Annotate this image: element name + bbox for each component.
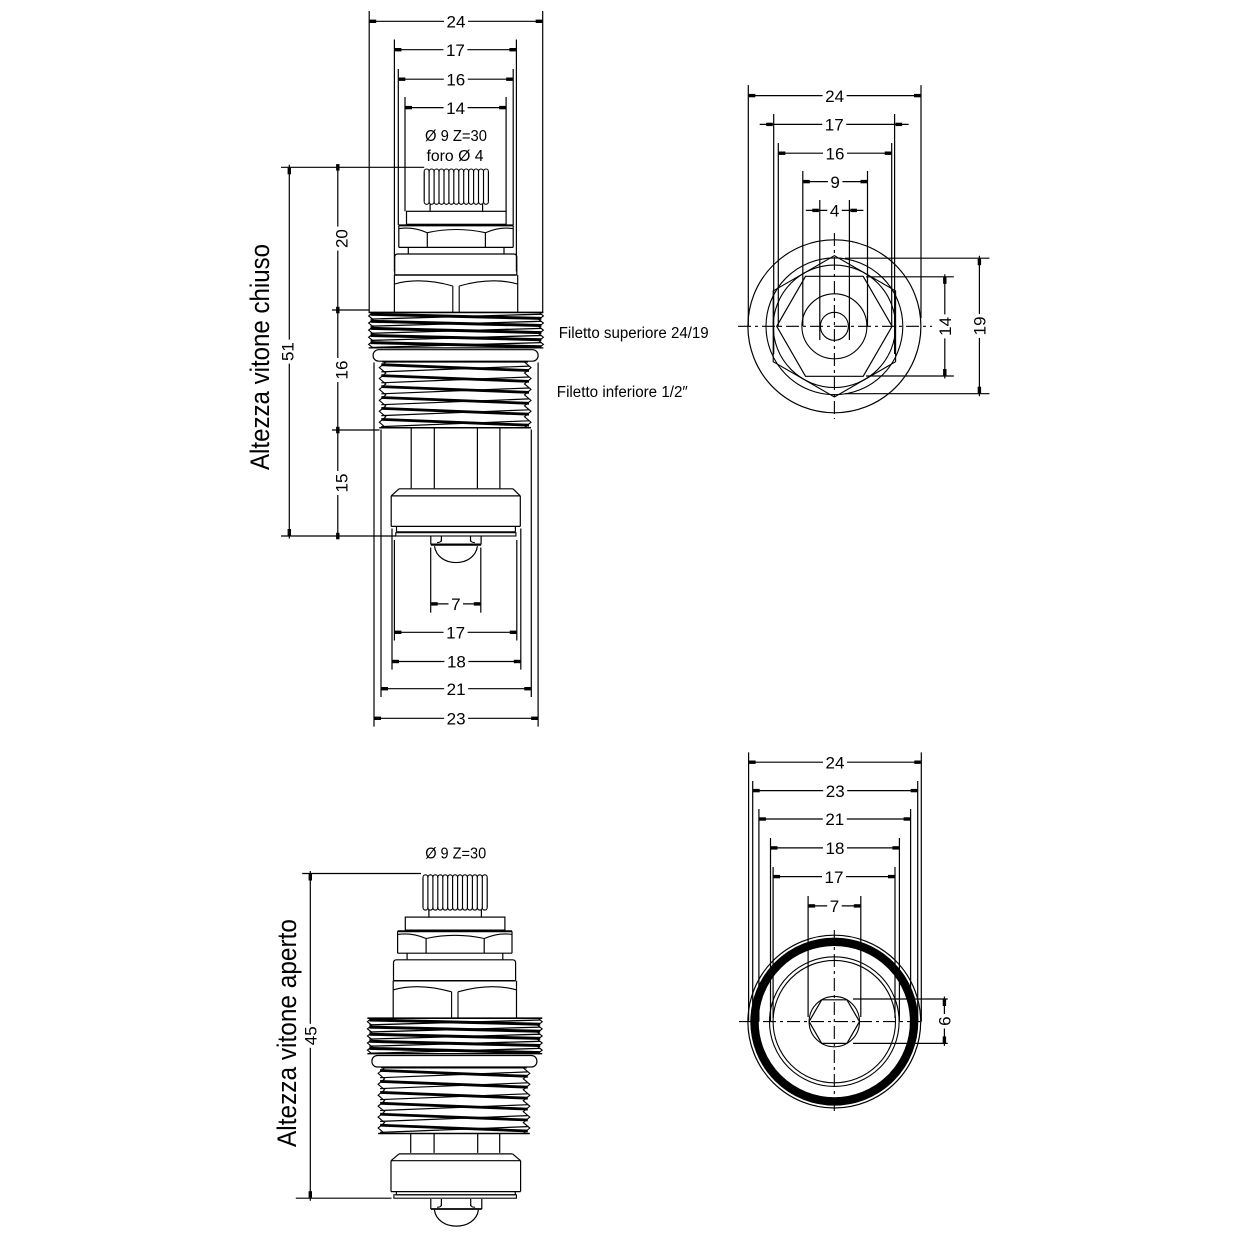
svg-text:Altezza vitone chiuso: Altezza vitone chiuso (245, 244, 275, 470)
svg-text:24: 24 (825, 87, 844, 106)
svg-text:14: 14 (446, 99, 465, 118)
svg-text:16: 16 (826, 144, 845, 163)
svg-text:18: 18 (447, 653, 466, 672)
svg-text:9: 9 (830, 173, 839, 192)
svg-text:24: 24 (826, 753, 845, 772)
svg-text:21: 21 (825, 810, 844, 829)
svg-text:24: 24 (447, 13, 466, 32)
svg-text:16: 16 (333, 361, 352, 380)
svg-text:19: 19 (971, 316, 990, 335)
svg-text:45: 45 (302, 1026, 321, 1045)
svg-text:18: 18 (826, 839, 845, 858)
svg-text:Ø 9 Z=30: Ø 9 Z=30 (425, 846, 486, 863)
svg-text:Filetto superiore 24/19: Filetto superiore 24/19 (559, 325, 709, 342)
svg-text:Altezza vitone aperto: Altezza vitone aperto (272, 919, 302, 1147)
svg-text:51: 51 (279, 342, 298, 361)
svg-text:Filetto inferiore 1/2″: Filetto inferiore 1/2″ (557, 384, 688, 401)
svg-text:21: 21 (447, 680, 466, 699)
svg-text:foro Ø 4: foro Ø 4 (427, 148, 484, 165)
svg-text:17: 17 (825, 868, 844, 887)
svg-text:20: 20 (333, 229, 352, 248)
svg-text:17: 17 (446, 41, 465, 60)
svg-text:14: 14 (936, 317, 955, 336)
svg-text:23: 23 (826, 782, 845, 801)
svg-text:23: 23 (447, 710, 466, 729)
svg-text:16: 16 (446, 70, 465, 89)
svg-text:7: 7 (451, 595, 460, 614)
svg-text:7: 7 (830, 897, 839, 916)
svg-text:4: 4 (830, 202, 839, 221)
svg-text:6: 6 (936, 1016, 955, 1025)
svg-text:15: 15 (333, 474, 352, 493)
svg-text:17: 17 (825, 116, 844, 135)
svg-text:Ø 9 Z=30: Ø 9 Z=30 (425, 128, 487, 145)
svg-text:17: 17 (446, 624, 465, 643)
